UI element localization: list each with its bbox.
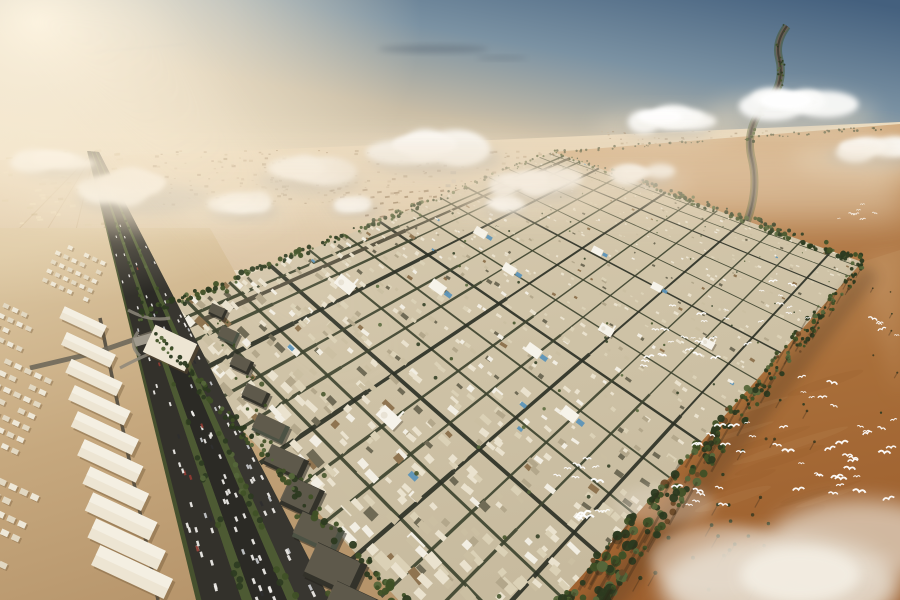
render-canvas (0, 0, 900, 600)
aerial-city-render (0, 0, 900, 600)
